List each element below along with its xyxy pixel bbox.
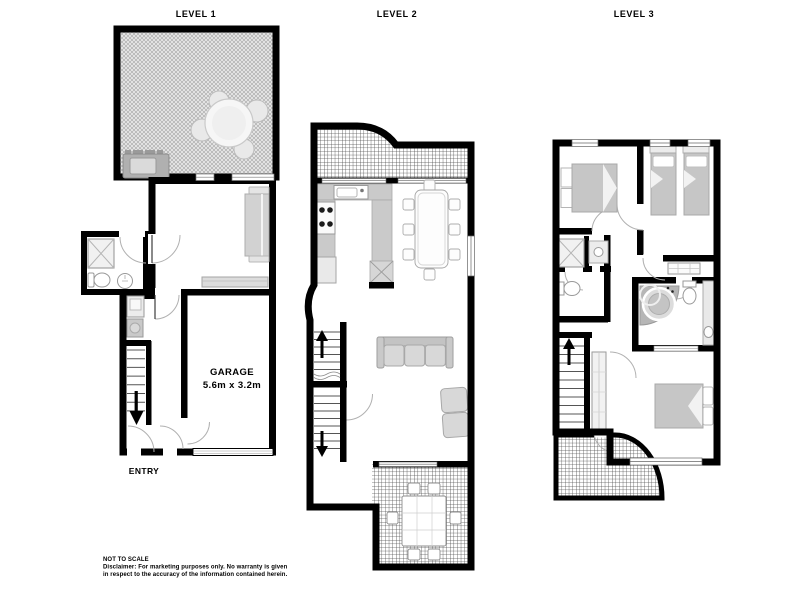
disclaimer-line-1: Disclaimer: For marketing purposes only.… <box>103 565 288 571</box>
balcony-wall <box>311 178 474 184</box>
right-wall-window <box>468 236 475 276</box>
toilet-icon <box>88 273 94 287</box>
level-2-plan: LEVEL 2 <box>307 9 475 570</box>
sofa-icon <box>377 337 453 368</box>
toilet-icon <box>683 281 696 287</box>
level-1-label: LEVEL 1 <box>176 9 217 19</box>
scale-note: NOT TO SCALE <box>103 557 149 563</box>
floorplan-svg: LEVEL 1 <box>0 0 800 600</box>
deck-wall <box>373 461 474 468</box>
wardrobe-icon <box>668 263 700 274</box>
level-2-label: LEVEL 2 <box>377 9 418 19</box>
garage-dims-label: 5.6m x 3.2m <box>203 380 261 391</box>
bed-icon <box>561 164 617 212</box>
corner-sofa-icon <box>440 387 469 438</box>
entry-label: ENTRY <box>129 466 160 476</box>
disclaimer-line-2: in respect to the accuracy of the inform… <box>103 572 288 578</box>
dresser-icon <box>202 277 268 287</box>
laundry-icons <box>127 296 144 337</box>
footer-disclaimer: NOT TO SCALE Disclaimer: For marketing p… <box>103 557 288 578</box>
linen-cupboard-icon <box>592 352 606 430</box>
balcony-hatch <box>310 122 475 181</box>
garage-label: GARAGE <box>210 367 254 378</box>
bbq-icon <box>123 150 169 178</box>
sink-icon <box>334 186 368 200</box>
level-1-plan: LEVEL 1 <box>84 9 276 476</box>
bed-icon <box>249 187 269 194</box>
fridge-icon <box>317 257 336 283</box>
floorplan-page: LEVEL 1 <box>0 0 800 600</box>
level-3-plan: LEVEL 3 <box>556 9 717 498</box>
level-3-label: LEVEL 3 <box>614 9 655 19</box>
stove-icon <box>317 202 335 234</box>
courtyard <box>117 29 276 178</box>
garage-door <box>193 449 273 456</box>
